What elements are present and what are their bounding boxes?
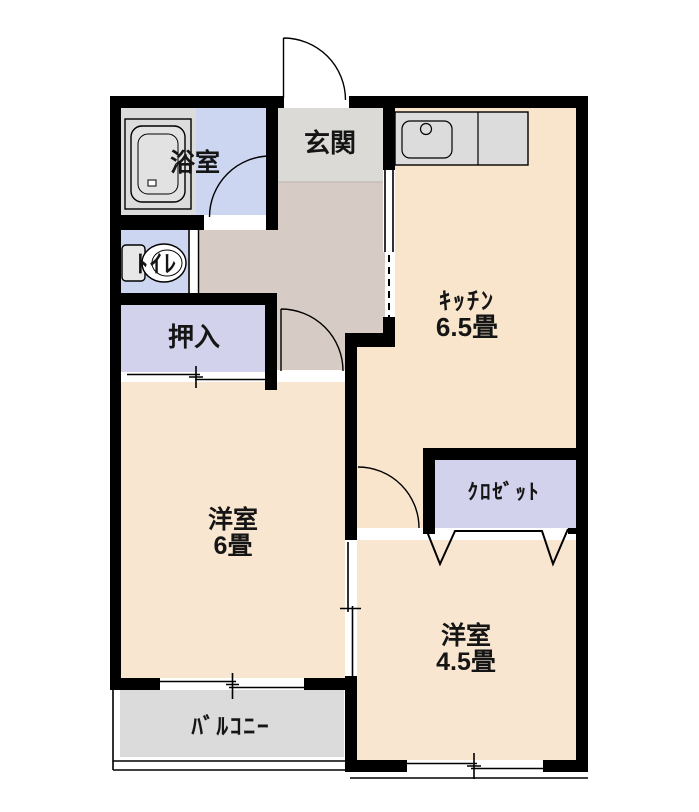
wall-toilet-bottom (110, 293, 277, 305)
wall-hall-kitchen-top (383, 108, 395, 170)
washroom-door-opening (204, 215, 266, 230)
kitchen-counter-icon (395, 112, 528, 165)
western6-label: 洋室 (208, 505, 258, 534)
wall-oshiire-right (265, 293, 277, 390)
wall-closet-top (423, 448, 576, 460)
floorplan: 浴室 玄関 ｷｯﾁﾝ 6.5畳 ﾄｲﾚ 押入 洋室 6畳 ｸﾛｾﾞｯﾄ 洋室 4… (0, 0, 699, 812)
wall-western45-bottom-right (543, 760, 588, 772)
wall-top-left (110, 96, 284, 108)
hallway-alcove-floor (200, 230, 282, 293)
western6-size: 6畳 (214, 532, 253, 560)
wall-hall-kitchen-stub (383, 317, 395, 333)
kitchen-size: 6.5畳 (436, 312, 498, 342)
wall-bath-bottom (110, 215, 204, 230)
kitchen-label: ｷｯﾁﾝ (439, 288, 495, 315)
wall-closet-left (423, 448, 435, 533)
western45-size: 4.5畳 (436, 648, 496, 676)
bath-label: 浴室 (170, 148, 220, 177)
faucet-icon (421, 124, 432, 135)
wall-left (110, 96, 121, 690)
wall-western6-bottom-right (304, 678, 345, 690)
wall-closet-left-foot (423, 528, 435, 534)
wall-western6-bottom-left (110, 678, 160, 690)
western45-label: 洋室 (441, 621, 491, 650)
wall-washroom-entrance (266, 108, 278, 230)
wall-top-right (349, 96, 588, 108)
toilet-label: ﾄｲﾚ (136, 251, 178, 278)
wall-balcony-divider (345, 676, 357, 772)
wall-right (576, 96, 588, 772)
western6-door-opening (277, 370, 345, 382)
wall-closet-right-foot (568, 528, 576, 534)
oshiire-label: 押入 (168, 322, 220, 352)
wall-kitchen-west (345, 347, 357, 540)
wall-jog (345, 333, 395, 347)
closet-label: ｸﾛｾﾞｯﾄ (468, 480, 541, 504)
floorplan-canvas: 浴室 玄関 ｷｯﾁﾝ 6.5畳 ﾄｲﾚ 押入 洋室 6畳 ｸﾛｾﾞｯﾄ 洋室 4… (0, 0, 699, 812)
entrance-door-opening (284, 96, 349, 108)
entrance-door-arc (284, 38, 346, 100)
balcony-label: ﾊﾞﾙｺﾆｰ (191, 713, 271, 739)
entrance-label: 玄関 (304, 128, 356, 158)
